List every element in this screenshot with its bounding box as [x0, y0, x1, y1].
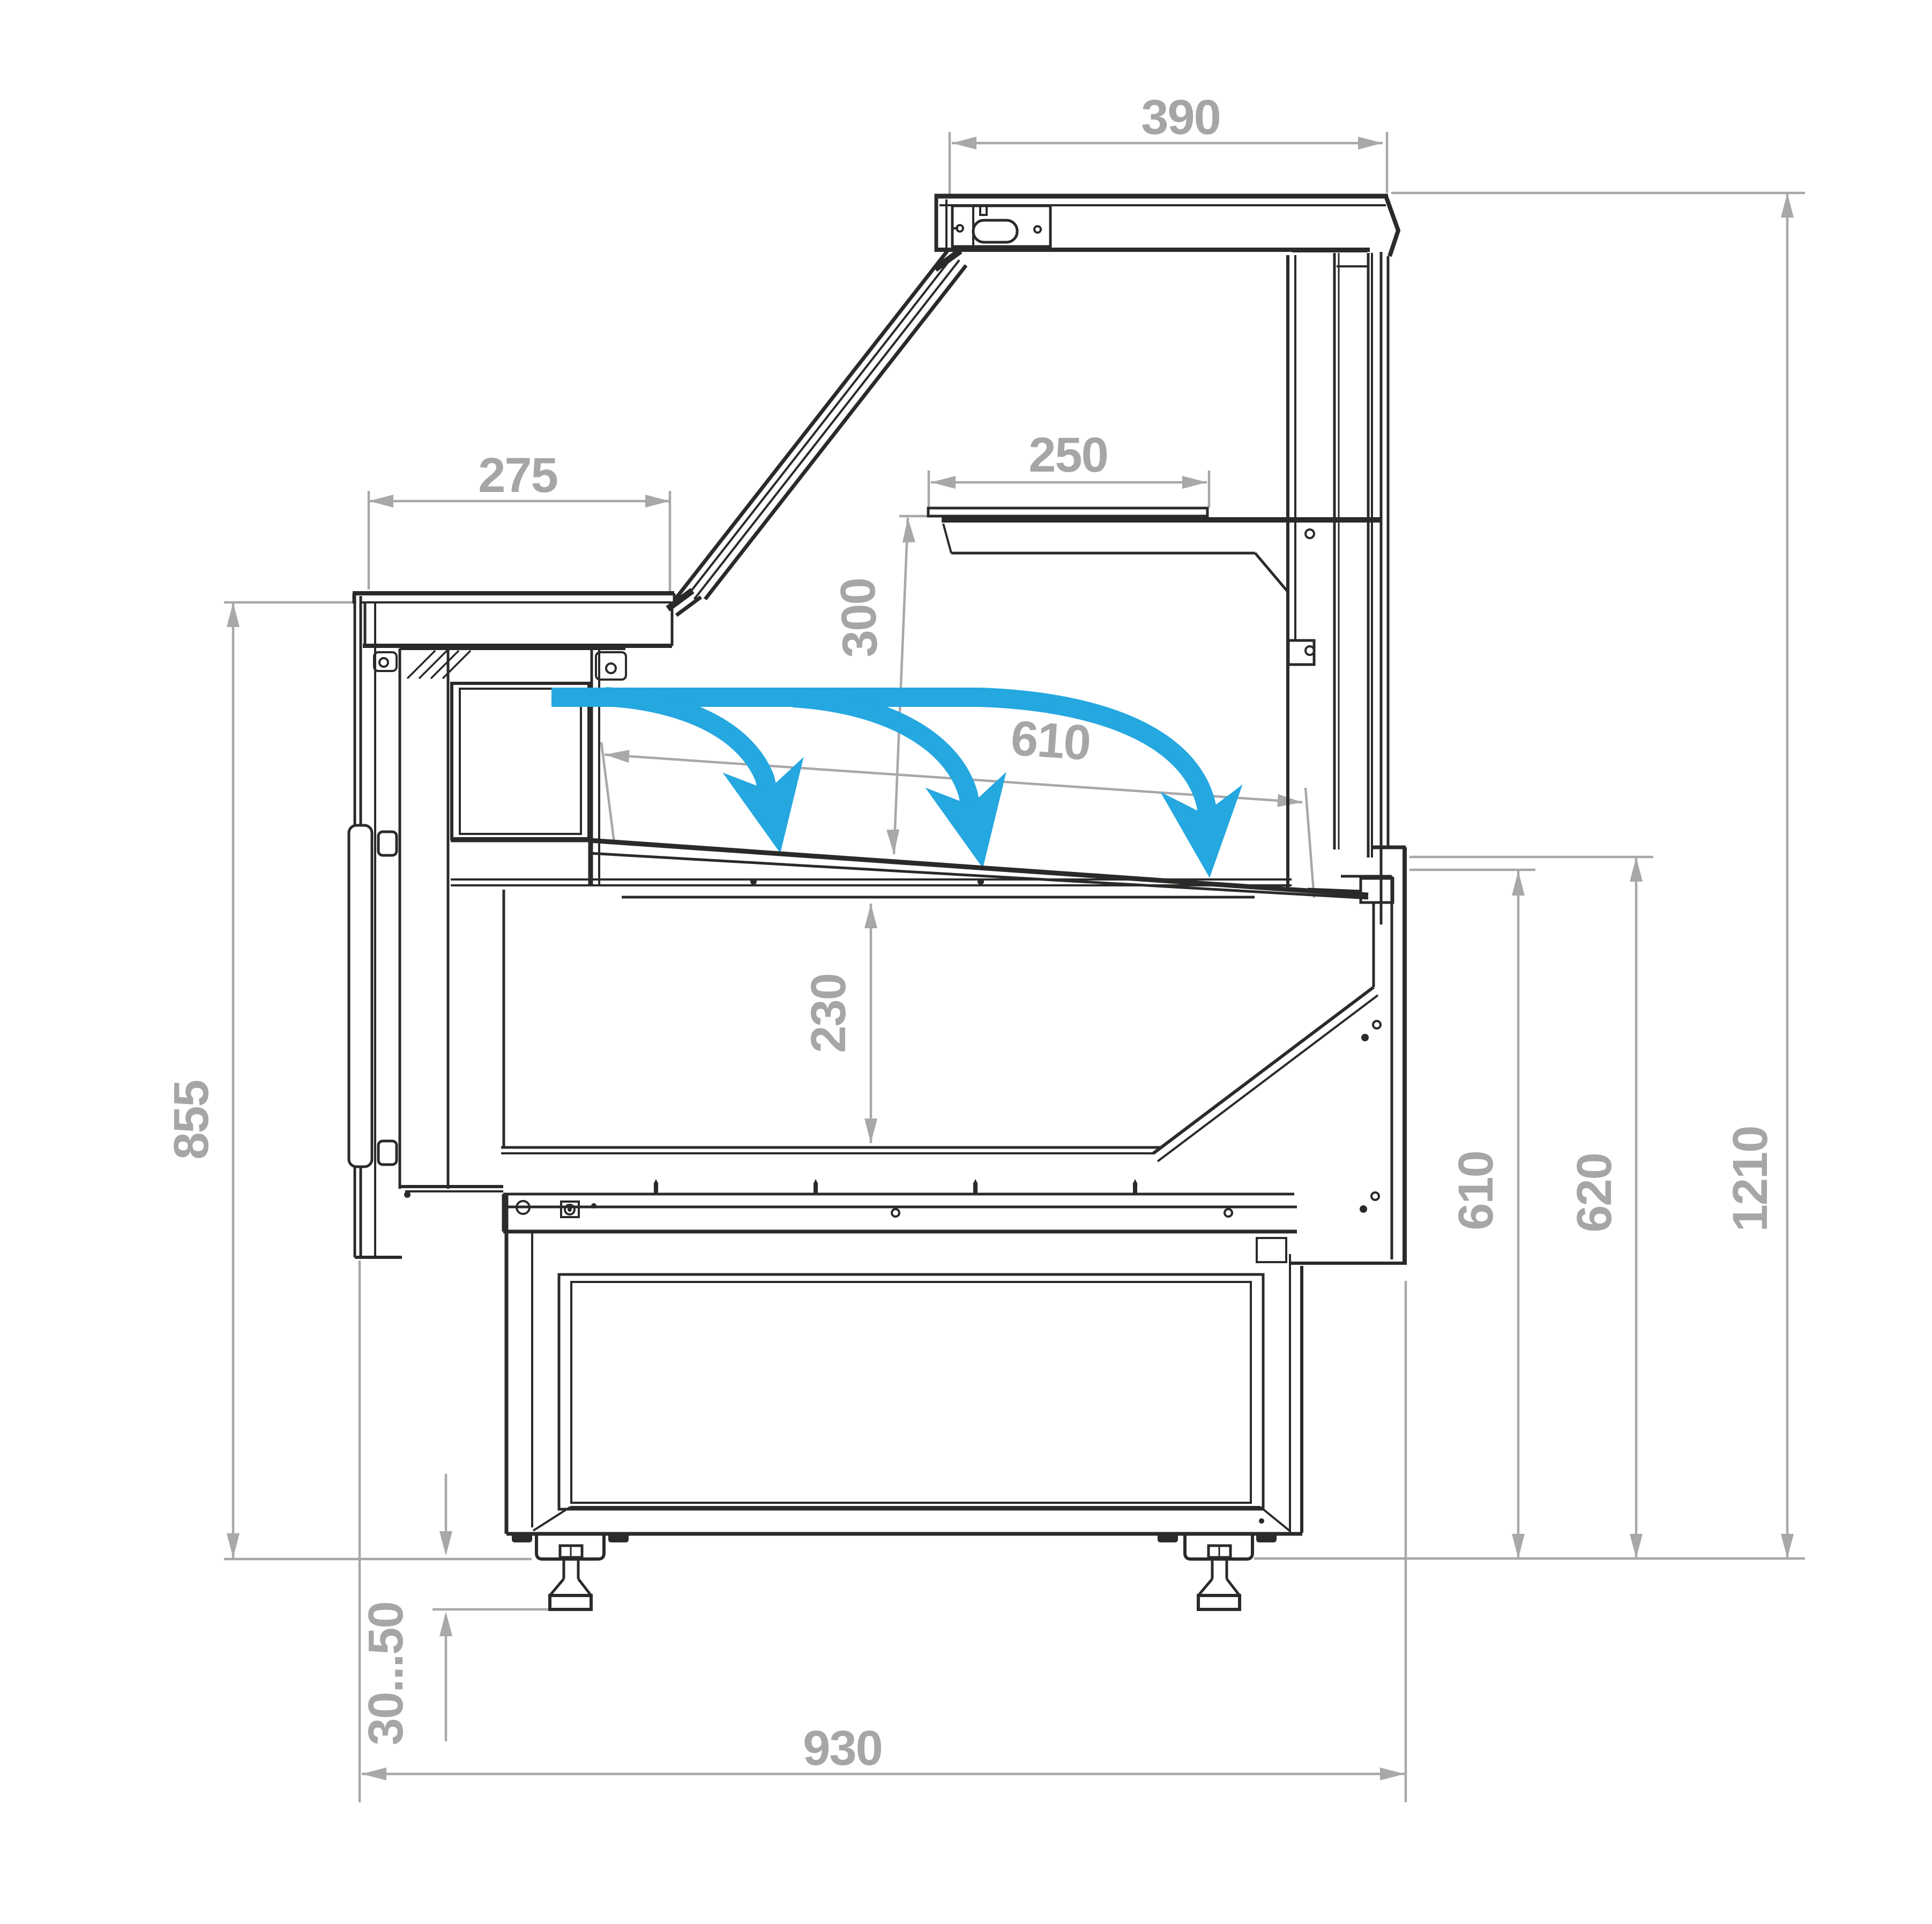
svg-text:610: 610	[1449, 1151, 1503, 1231]
svg-text:390: 390	[1141, 90, 1220, 145]
svg-text:275: 275	[478, 448, 557, 503]
svg-text:230: 230	[801, 974, 856, 1053]
svg-text:300: 300	[830, 578, 887, 659]
svg-text:855: 855	[164, 1080, 219, 1160]
svg-text:1210: 1210	[1723, 1127, 1778, 1232]
svg-text:610: 610	[1009, 711, 1092, 771]
svg-text:930: 930	[803, 1721, 882, 1776]
svg-text:620: 620	[1567, 1153, 1622, 1233]
svg-text:250: 250	[1028, 428, 1108, 482]
svg-text:30...50: 30...50	[359, 1602, 413, 1745]
